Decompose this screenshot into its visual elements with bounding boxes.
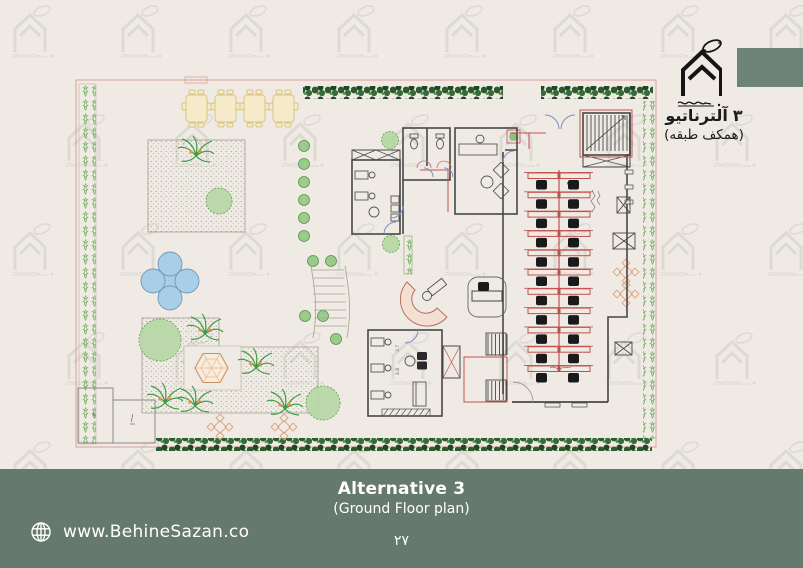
building-layer <box>352 113 635 416</box>
reception-counter <box>400 282 447 326</box>
left-plant-strip <box>79 84 96 444</box>
top-hedge-right <box>541 86 653 99</box>
accent-swatch <box>737 48 803 87</box>
planter-strip <box>404 236 412 274</box>
terrace-dining-tables <box>182 90 298 127</box>
top-hedge-left <box>303 86 503 99</box>
logo <box>676 34 722 110</box>
footer-titles: Alternative 3 (Ground Floor plan) <box>0 479 803 517</box>
room-label-scribble <box>591 190 600 212</box>
floor-plan-drawing: 3.7 4.8 <box>70 50 670 460</box>
website-url: www.BehineSazan.co <box>63 522 249 542</box>
globe-icon <box>30 521 52 543</box>
garden-steps <box>311 266 350 338</box>
bush-row <box>299 141 310 242</box>
bottom-hedge <box>156 438 652 451</box>
plan-title-fa: آلترناتیو ۳ (طبقه همکف) <box>648 106 760 144</box>
title-fa-number: ۳ <box>733 106 743 126</box>
title-fa-word: آلترناتیو <box>665 106 728 126</box>
footer-bar: Alternative 3 (Ground Floor plan) ۲۷ www… <box>0 469 803 568</box>
slide: 3.7 4.8 <box>0 0 803 568</box>
dim-label-2: 4.8 <box>395 368 401 375</box>
dim-label-1: 3.7 <box>395 345 401 352</box>
website-block: www.BehineSazan.co <box>30 521 249 543</box>
garden-layer <box>139 90 639 440</box>
floor-plan: 3.7 4.8 <box>70 50 670 460</box>
workstation-rows <box>524 170 593 383</box>
lobby-chair <box>478 282 489 291</box>
title-fa-line1: آلترناتیو ۳ <box>648 106 760 126</box>
title-fa-line2: (طبقه همکف) <box>648 126 760 144</box>
right-vine-strip <box>643 101 655 439</box>
subtitle-fa-second: همکف) <box>702 126 744 144</box>
plan-subtitle-en: (Ground Floor plan) <box>0 501 803 517</box>
plan-title-en: Alternative 3 <box>0 479 803 499</box>
red-partitions <box>420 110 632 402</box>
pool <box>141 252 199 310</box>
subtitle-fa-first: (طبقه <box>664 126 698 144</box>
behinesazan-house-logo-icon <box>676 34 722 110</box>
